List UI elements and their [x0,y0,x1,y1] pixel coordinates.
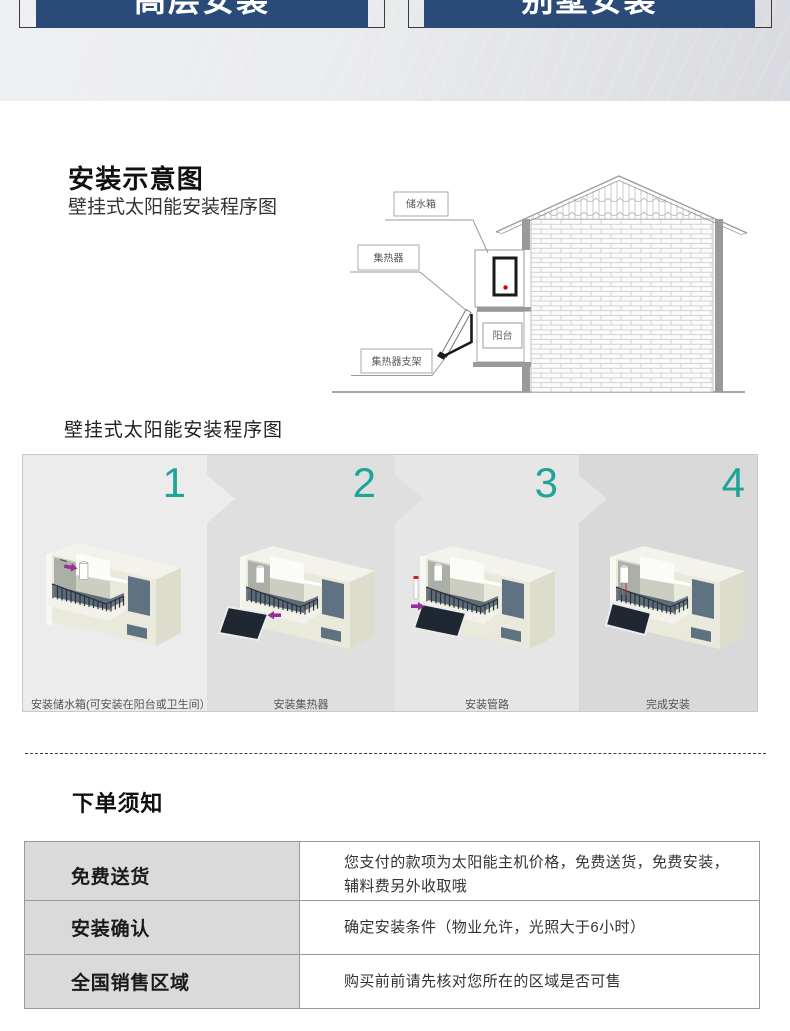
svg-text:阳台: 阳台 [493,329,513,342]
svg-text:储水箱: 储水箱 [406,198,436,211]
svg-text:集热器: 集热器 [374,252,404,265]
svg-text:集热器支架: 集热器支架 [372,355,422,368]
